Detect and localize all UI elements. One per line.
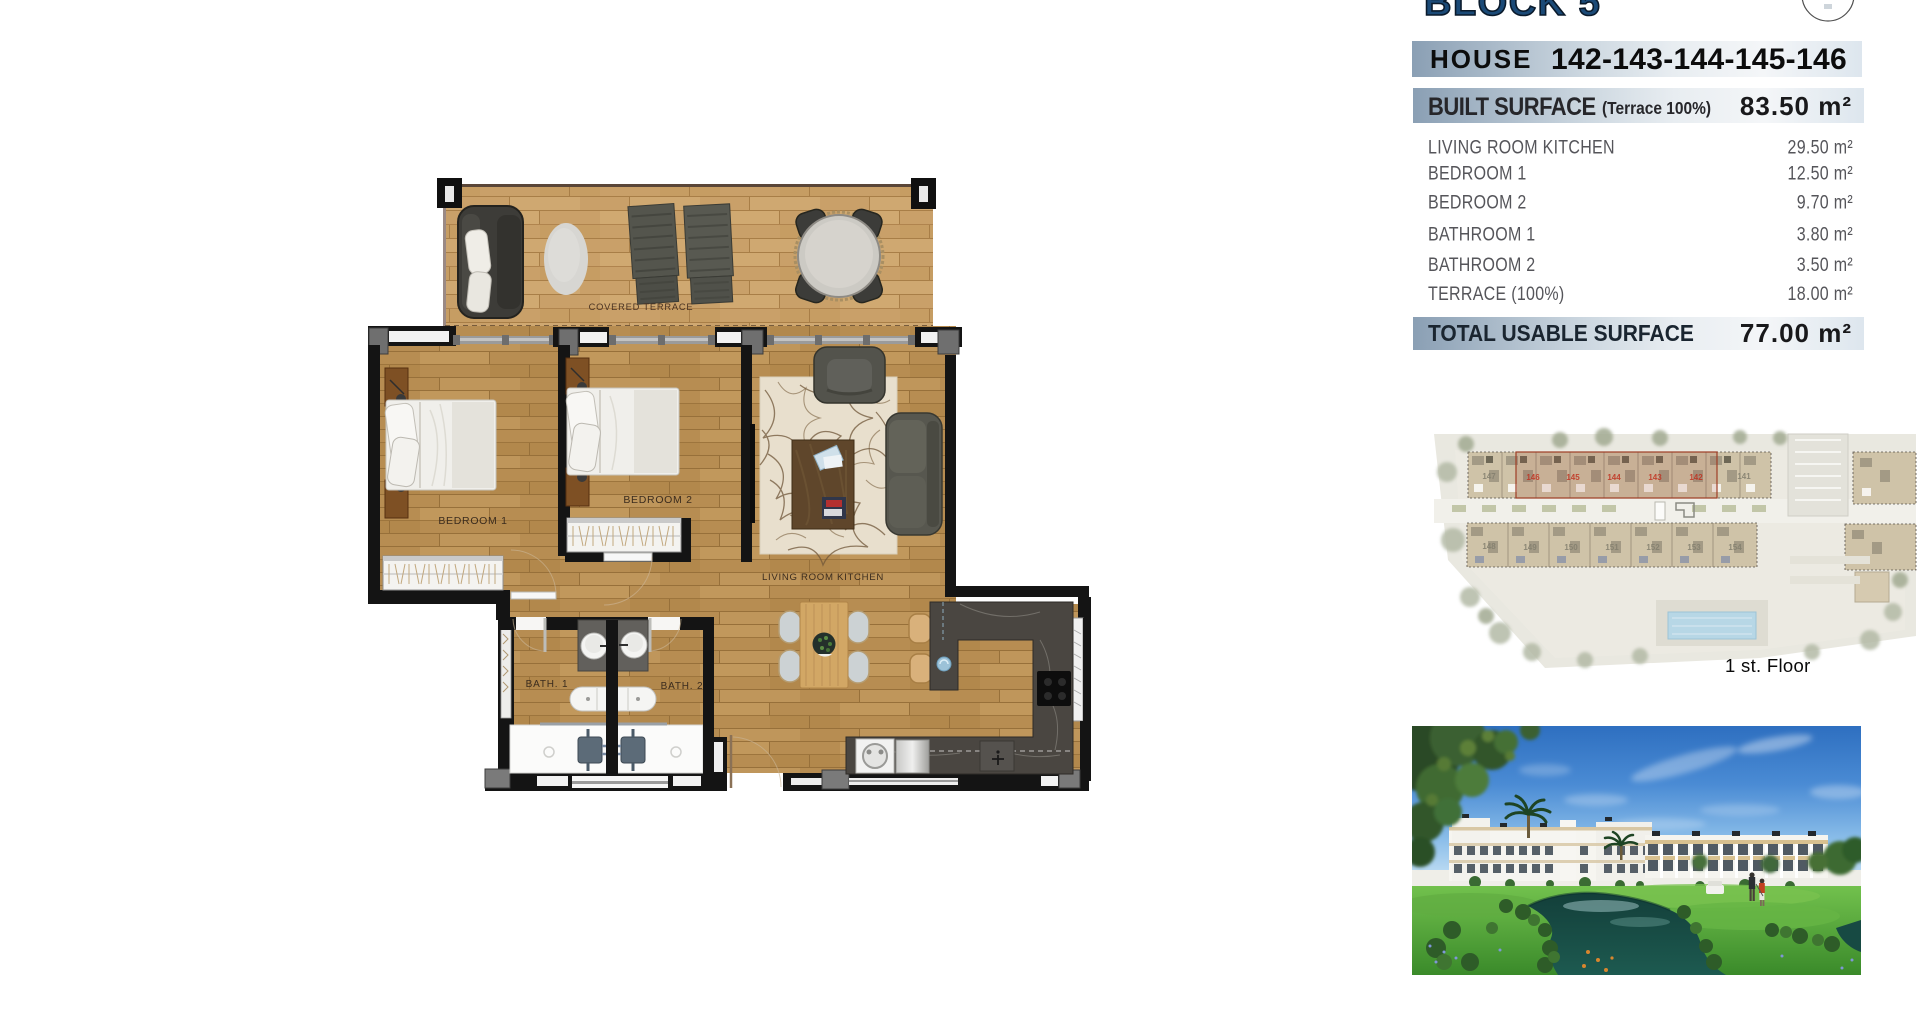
svg-text:12.50 m²: 12.50 m²: [1788, 162, 1853, 184]
svg-text:1 st. Floor: 1 st. Floor: [1725, 655, 1811, 676]
svg-text:143: 143: [1648, 473, 1662, 482]
svg-text:150: 150: [1564, 543, 1578, 552]
svg-text:154: 154: [1728, 543, 1742, 552]
svg-text:BEDROOM 2: BEDROOM 2: [1428, 191, 1527, 213]
svg-text:3.50 m²: 3.50 m²: [1797, 253, 1853, 275]
svg-text:BATHROOM 1: BATHROOM 1: [1428, 223, 1535, 245]
svg-text:147: 147: [1482, 472, 1496, 481]
svg-text:77.00 m²: 77.00 m²: [1740, 318, 1852, 348]
svg-text:BLOCK 5: BLOCK 5: [1424, 0, 1601, 24]
svg-text:146: 146: [1526, 473, 1540, 482]
svg-text:18.00 m²: 18.00 m²: [1788, 283, 1853, 305]
svg-text:TERRACE (100%): TERRACE (100%): [1428, 283, 1565, 305]
svg-text:142-143-144-145-146: 142-143-144-145-146: [1551, 43, 1847, 76]
svg-text:141: 141: [1737, 472, 1751, 481]
svg-text:BATH. 2: BATH. 2: [661, 681, 704, 692]
svg-text:BATH. 1: BATH. 1: [526, 679, 569, 690]
svg-text:TOTAL USABLE SURFACE: TOTAL USABLE SURFACE: [1428, 320, 1694, 346]
svg-text:LIVING ROOM KITCHEN: LIVING ROOM KITCHEN: [762, 572, 884, 583]
svg-text:29.50 m²: 29.50 m²: [1788, 136, 1853, 158]
svg-text:149: 149: [1523, 543, 1537, 552]
svg-text:COVERED TERRACE: COVERED TERRACE: [589, 302, 694, 312]
svg-text:83.50 m²: 83.50 m²: [1740, 91, 1852, 121]
svg-text:152: 152: [1646, 543, 1660, 552]
svg-text:3.80 m²: 3.80 m²: [1797, 223, 1853, 245]
svg-text:142: 142: [1689, 473, 1703, 482]
svg-text:BEDROOM 1: BEDROOM 1: [1428, 162, 1527, 184]
svg-text:144: 144: [1607, 473, 1621, 482]
svg-text:153: 153: [1687, 543, 1701, 552]
svg-text:148: 148: [1482, 542, 1496, 551]
svg-text:BEDROOM 1: BEDROOM 1: [438, 515, 507, 527]
svg-text:151: 151: [1605, 543, 1619, 552]
svg-text:BEDROOM 2: BEDROOM 2: [623, 494, 692, 506]
svg-text:(Terrace 100%): (Terrace 100%): [1602, 98, 1711, 118]
svg-text:145: 145: [1566, 473, 1580, 482]
svg-text:HOUSE: HOUSE: [1430, 44, 1532, 74]
svg-text:9.70 m²: 9.70 m²: [1797, 191, 1853, 213]
svg-text:BUILT SURFACE: BUILT SURFACE: [1428, 94, 1596, 122]
svg-text:LIVING ROOM KITCHEN: LIVING ROOM KITCHEN: [1428, 136, 1615, 158]
svg-text:BATHROOM 2: BATHROOM 2: [1428, 253, 1535, 275]
